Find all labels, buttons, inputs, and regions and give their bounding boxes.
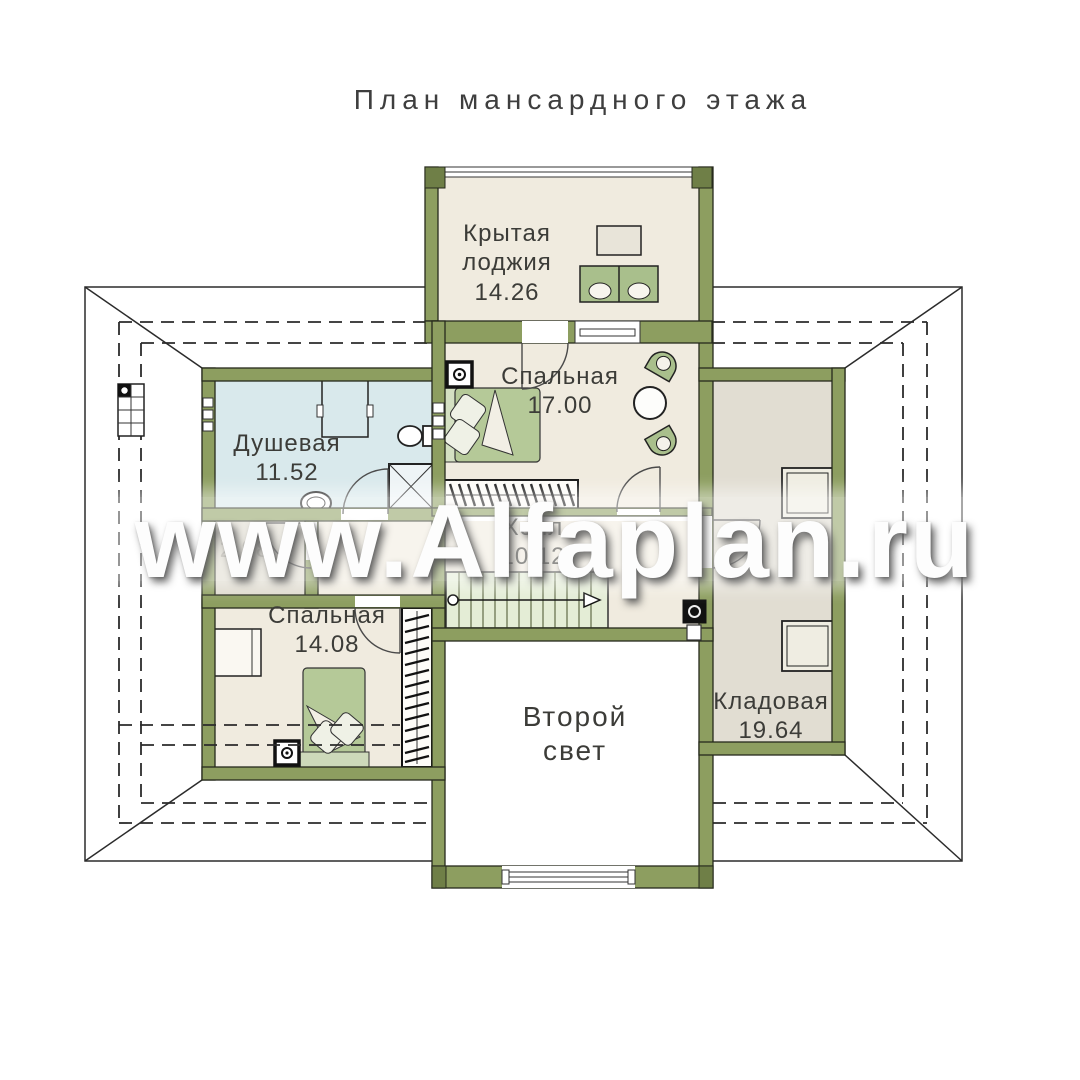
toilet-icon <box>398 426 433 446</box>
loggia-seats-icon <box>580 266 658 302</box>
room-name: Спальная <box>501 362 619 391</box>
stove-icon <box>447 362 472 387</box>
floor-plan-page: План мансардного этажа Крытая лоджия 14.… <box>0 0 1080 1080</box>
room-name: Крытая <box>462 219 552 248</box>
room-label-storage: Кладовая 19.64 <box>713 687 829 746</box>
room-label-shower: Душевая 11.52 <box>233 429 340 488</box>
room-name: свет <box>523 734 628 768</box>
loggia-table-icon <box>597 226 641 255</box>
room-area: 17.00 <box>501 391 619 420</box>
desk-icon <box>214 629 261 676</box>
room-name: Спальная <box>268 601 386 630</box>
room-name: лоджия <box>462 248 552 277</box>
room-name: Кладовая <box>713 687 829 716</box>
wardrobe-icon-bedroom2 <box>402 608 432 767</box>
room-label-bedroom1: Спальная 17.00 <box>501 362 619 421</box>
door-opening <box>522 321 568 343</box>
room-label-void: Второй свет <box>523 700 628 768</box>
room-area: 19.64 <box>713 716 829 745</box>
watermark-text: www.Alfaplan.ru <box>95 483 1015 602</box>
cabinet-tab-icon <box>317 405 323 417</box>
bed-icon-bedroom2 <box>299 668 369 768</box>
round-table-icon <box>634 387 666 419</box>
room-area: 14.26 <box>462 278 552 307</box>
storage-window-icon <box>782 621 833 671</box>
room-name: Душевая <box>233 429 340 458</box>
room-label-bedroom2: Спальная 14.08 <box>268 601 386 660</box>
room-area: 14.08 <box>268 630 386 659</box>
cabinet-tab-icon <box>367 405 373 417</box>
page-title: План мансардного этажа <box>354 84 812 116</box>
chimney-icon <box>118 384 144 436</box>
room-label-loggia: Крытая лоджия 14.26 <box>462 219 552 307</box>
room-name: Второй <box>523 700 628 734</box>
